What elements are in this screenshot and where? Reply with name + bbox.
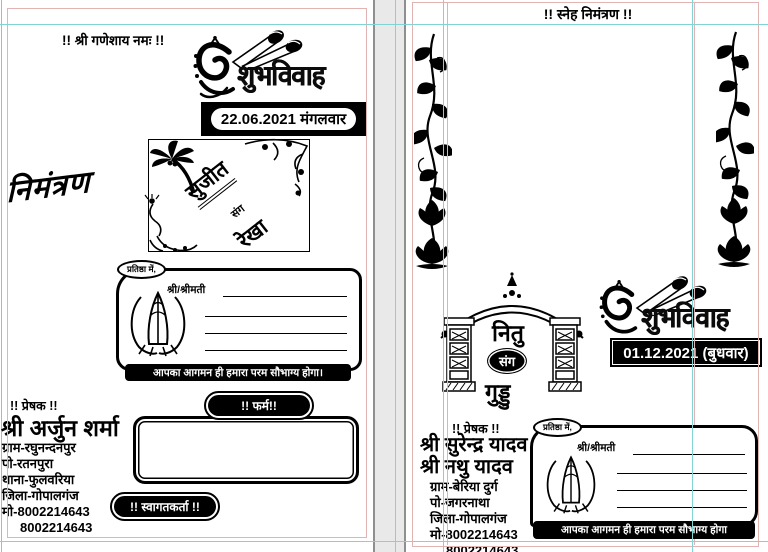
welcome-pill[interactable]: !! स्वागतकर्ता !! [110,492,220,521]
guide-horizontal[interactable] [0,24,768,25]
guest-box-tab-left: प्रतिष्ठा में, [117,260,166,279]
firm-pill-text: !! फर्म!! [208,395,310,416]
guide-vertical[interactable] [395,0,396,552]
blank-line [633,454,745,455]
blessing-bar-right: आपका आगमन ही हमारा परम सौभाग्य होगा [533,521,755,539]
design-canvas[interactable]: !! श्री गणेशाय नमः !! [0,0,768,552]
blank-line [205,333,347,334]
blessing-text-right: आपका आगमन ही हमारा परम सौभाग्य होगा [561,523,727,537]
guest-box-tab-right: प्रतिष्ठा में, [533,418,582,437]
blank-line [205,350,347,351]
blank-line [205,316,347,317]
namaste-hands-icon [127,287,189,359]
page-right[interactable]: !! स्नेह निमंत्रण !! [408,0,768,552]
namaste-hands-icon [543,452,599,516]
column-guide[interactable] [447,2,448,545]
guest-box-right[interactable]: प्रतिष्ठा में, श्री/श्रीमती आपका आगमन [530,425,758,527]
blank-line [617,473,747,474]
page-divider [373,0,406,552]
welcome-pill-text: !! स्वागतकर्ता !! [114,496,216,517]
blessing-bar-left: आपका आगमन ही हमारा परम सौभाग्य होगा। [125,364,351,381]
blank-line [617,507,747,508]
blank-line [617,490,747,491]
blessing-text-left: आपका आगमन ही हमारा परम सौभाग्य होगा। [153,366,323,380]
guide-vertical[interactable] [443,0,444,552]
blank-line [223,296,347,297]
page-left[interactable]: !! श्री गणेशाय नमः !! [0,0,373,552]
guide-vertical[interactable] [692,0,693,552]
guide-horizontal[interactable] [0,541,768,542]
firm-pill[interactable]: !! फर्म!! [204,391,314,420]
guest-box-left[interactable]: प्रतिष्ठा में, श्री/श्रीमती आपका आगमन [116,268,362,371]
